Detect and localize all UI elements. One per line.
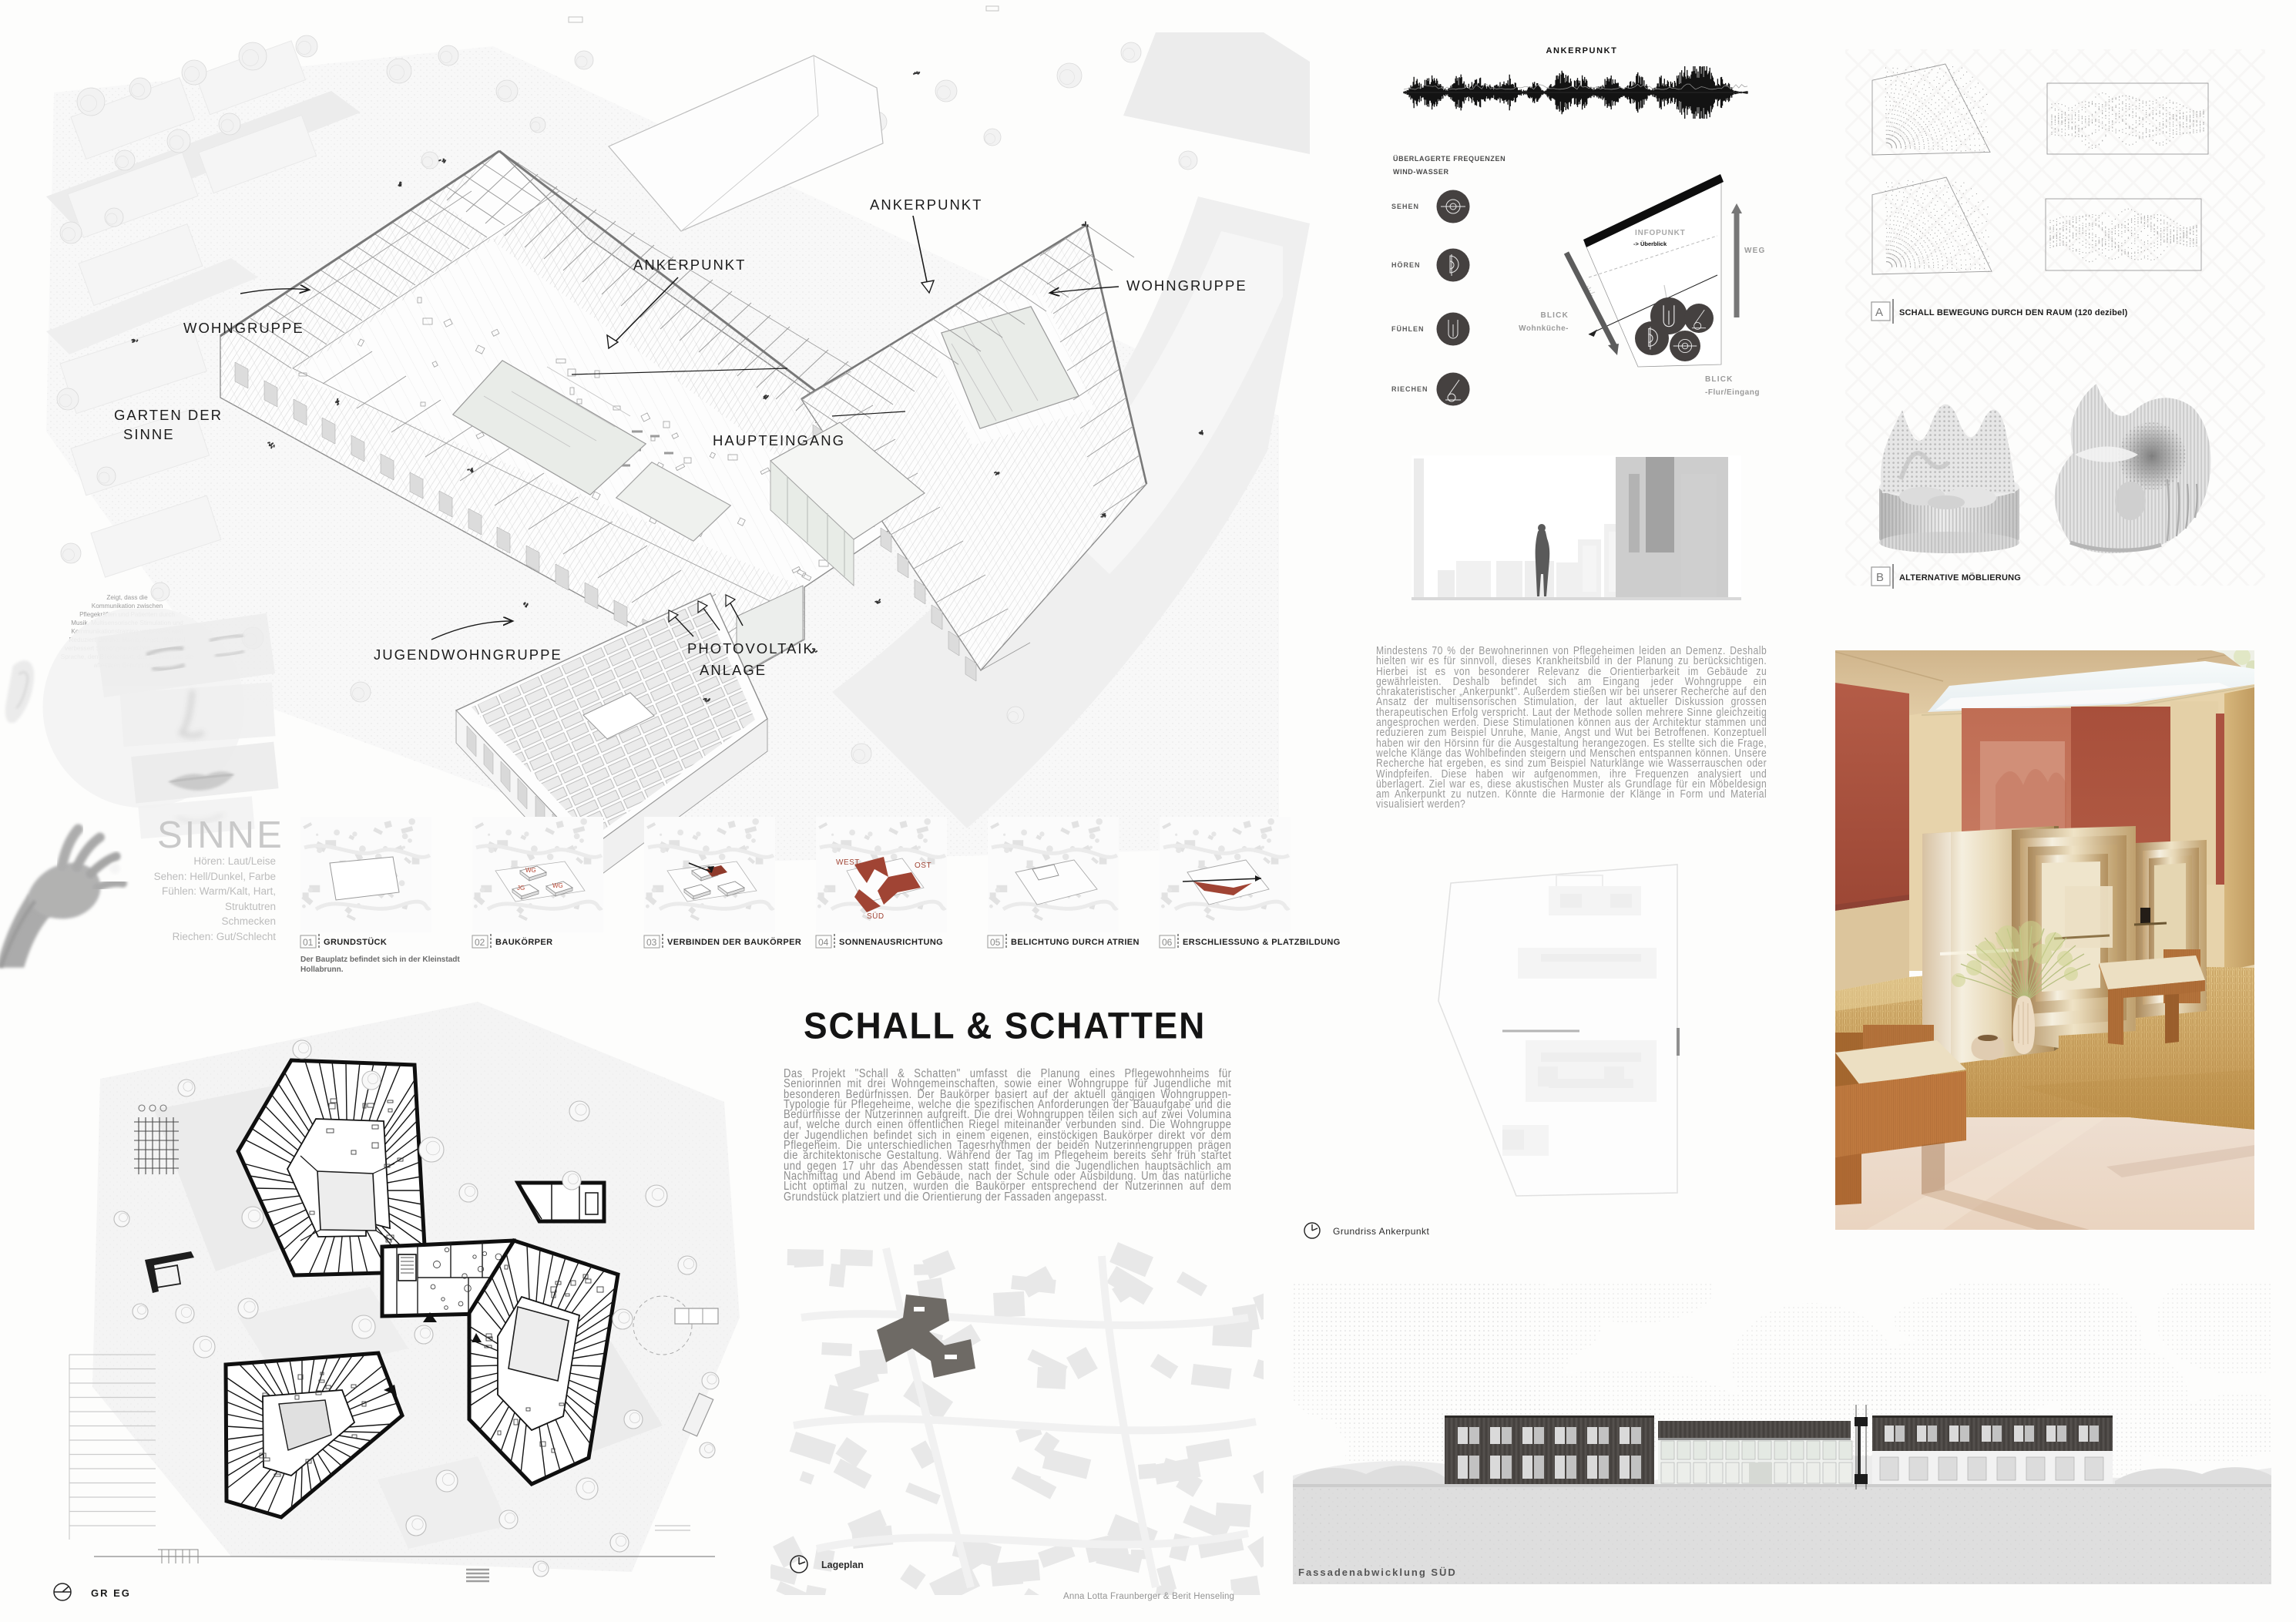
svg-text:BELICHTUNG DURCH ATRIEN: BELICHTUNG DURCH ATRIEN xyxy=(1011,938,1140,947)
svg-text:-Flur/Eingang: -Flur/Eingang xyxy=(1705,388,1760,397)
svg-text:WIND-WASSER: WIND-WASSER xyxy=(1393,168,1449,176)
svg-text:ÜBERLAGERTE FREQUENZEN: ÜBERLAGERTE FREQUENZEN xyxy=(1393,155,1505,163)
svg-text:WOHNGRUPPE: WOHNGRUPPE xyxy=(1126,277,1247,294)
svg-text:PHOTOVOLTAIK: PHOTOVOLTAIK xyxy=(687,640,814,657)
svg-text:BAUKÖRPER: BAUKÖRPER xyxy=(495,937,553,947)
svg-text:SÜD: SÜD xyxy=(867,912,884,921)
svg-text:SEHEN: SEHEN xyxy=(1391,203,1419,210)
svg-text:Grundriss Ankerpunkt: Grundriss Ankerpunkt xyxy=(1333,1226,1430,1237)
svg-text:GR EG: GR EG xyxy=(91,1587,131,1599)
svg-text:INFOPUNKT: INFOPUNKT xyxy=(1635,229,1686,237)
svg-text:A: A xyxy=(1875,306,1883,319)
svg-text:Fassadenabwicklung SÜD: Fassadenabwicklung SÜD xyxy=(1298,1567,1457,1578)
svg-text:Der Bauplatz befindet sich in: Der Bauplatz befindet sich in der Kleins… xyxy=(300,955,460,964)
svg-text:05: 05 xyxy=(990,937,1001,948)
svg-text:WOHNGRUPPE: WOHNGRUPPE xyxy=(183,320,304,336)
svg-text:01: 01 xyxy=(303,937,314,948)
svg-text:FÜHLEN: FÜHLEN xyxy=(1391,325,1425,333)
svg-text:06: 06 xyxy=(1162,937,1173,948)
svg-text:04: 04 xyxy=(818,937,829,948)
svg-text:ANKERPUNKT: ANKERPUNKT xyxy=(633,257,746,273)
svg-text:OST: OST xyxy=(915,861,931,870)
svg-text:SONNENAUSRICHTUNG: SONNENAUSRICHTUNG xyxy=(839,938,943,947)
svg-text:WEG: WEG xyxy=(1744,247,1766,255)
svg-text:ANKERPUNKT: ANKERPUNKT xyxy=(1546,46,1618,55)
svg-text:03: 03 xyxy=(646,937,657,948)
svg-text:Wohnküche-: Wohnküche- xyxy=(1519,324,1569,333)
svg-text:BLICK: BLICK xyxy=(1705,375,1734,384)
svg-text:Zeigt, dass die: Zeigt, dass die xyxy=(106,594,148,601)
svg-text:HÖREN: HÖREN xyxy=(1391,261,1421,269)
svg-text:HAUPTEINGANG: HAUPTEINGANG xyxy=(713,432,845,448)
svg-text:WG: WG xyxy=(552,882,563,889)
svg-text:SCHALL BEWEGUNG DURCH DEN RAUM: SCHALL BEWEGUNG DURCH DEN RAUM (120 dezi… xyxy=(1899,308,2128,317)
svg-text:GARTEN DER: GARTEN DER xyxy=(114,407,223,423)
svg-text:JG: JG xyxy=(517,885,525,892)
svg-text:ANLAGE: ANLAGE xyxy=(700,662,767,678)
svg-text:Hollabrunn.: Hollabrunn. xyxy=(300,965,344,974)
svg-text:WEST: WEST xyxy=(836,858,860,867)
svg-text:-> Überblick: -> Überblick xyxy=(1633,240,1667,247)
svg-text:VERBINDEN DER BAUKÖRPER: VERBINDEN DER BAUKÖRPER xyxy=(667,937,801,947)
svg-text:GRUNDSTÜCK: GRUNDSTÜCK xyxy=(324,937,387,947)
svg-text:BLICK: BLICK xyxy=(1540,311,1569,320)
svg-text:SINNE: SINNE xyxy=(123,426,175,442)
svg-text:RIECHEN: RIECHEN xyxy=(1391,385,1428,393)
svg-text:ALTERNATIVE MÖBLIERUNG: ALTERNATIVE MÖBLIERUNG xyxy=(1899,573,2021,583)
svg-text:ERSCHLIESSUNG & PLATZBILDUNG: ERSCHLIESSUNG & PLATZBILDUNG xyxy=(1183,938,1341,947)
svg-text:ANKERPUNKT: ANKERPUNKT xyxy=(870,196,982,213)
svg-text:Lageplan: Lageplan xyxy=(821,1560,864,1570)
svg-text:B: B xyxy=(1876,571,1884,584)
svg-text:WG: WG xyxy=(525,867,536,874)
svg-text:02: 02 xyxy=(475,937,485,948)
